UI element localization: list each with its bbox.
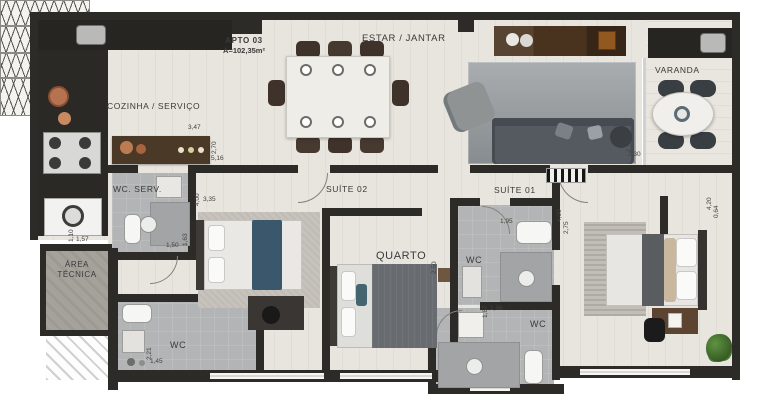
wcserv-toilet	[124, 214, 141, 244]
suite01-pillow	[676, 271, 697, 300]
wcb-vanity	[458, 312, 484, 338]
wca-vanity	[462, 266, 482, 298]
wall-top	[30, 12, 740, 20]
wall-right	[732, 12, 740, 380]
wall-at-bottom	[40, 330, 112, 336]
window-suite01	[580, 369, 690, 375]
window-quarto	[340, 373, 432, 379]
suite01-desk-item-icon	[668, 313, 682, 328]
wall-top-column	[230, 12, 262, 34]
cooktop-burner-icon	[79, 157, 91, 169]
room-label-suite01: SUÍTE 01	[494, 185, 536, 195]
quarto-pillow	[341, 271, 356, 301]
room-label-suite02: SUÍTE 02	[326, 184, 368, 194]
quarto-blanket	[372, 264, 437, 348]
kitchen-pot2-icon	[58, 112, 71, 125]
cooktop-burner-icon	[79, 137, 91, 149]
wall-top-column2	[458, 12, 474, 32]
dining-chair	[268, 80, 285, 106]
suite02-chair	[262, 306, 280, 324]
place-setting-icon	[332, 64, 344, 76]
dim-right-wall-a: 4,20	[706, 190, 713, 210]
dining-chair	[392, 80, 409, 106]
apartment-title: APTO 03 Á=102,35m²	[198, 36, 290, 55]
room-label-quarto: QUARTO	[376, 250, 426, 262]
wall-at-top	[40, 244, 112, 251]
island-light-icon	[198, 147, 204, 153]
wca-toilet	[516, 221, 552, 244]
island-light-icon	[188, 147, 194, 153]
quarto-nightstand	[438, 268, 450, 282]
room-label-wc-suite01: WC	[466, 255, 482, 265]
wall-corridor-5	[588, 165, 740, 173]
place-setting-icon	[332, 116, 344, 128]
room-label-wc-quarto: WC	[530, 319, 546, 329]
dim-laundry-width: 1,57	[76, 236, 89, 243]
island-pot-icon	[120, 141, 133, 154]
dim-wc-left-width: 1,45	[150, 358, 163, 365]
dim-right-wall-b: 0,64	[713, 202, 720, 218]
wall-quarto-top	[322, 208, 422, 216]
kitchen-pot-icon	[50, 88, 67, 105]
dim-varanda-depth: 2,53	[626, 132, 633, 152]
suite01-shoe-rack	[546, 168, 586, 183]
dim-kitchen-width: 3,47	[188, 124, 201, 131]
room-label-wc-social: WC	[170, 340, 186, 350]
quarto-pillow	[341, 307, 356, 337]
suite01-chair	[644, 318, 665, 342]
wall-quarto-left	[322, 208, 330, 378]
wcleft-vanity	[122, 330, 145, 353]
island-light-icon	[178, 147, 184, 153]
wcleft-toilet	[122, 304, 152, 323]
varanda-centerpiece-icon	[674, 106, 690, 122]
dim-quarto-depth: 2,50	[431, 254, 438, 274]
dining-chair	[296, 136, 320, 153]
dim-wc-quarto-depth: 1,67	[482, 302, 489, 318]
wall-corridor-3	[330, 165, 438, 173]
wcb-toilet	[524, 350, 543, 384]
quarto-pillow-teal	[356, 284, 367, 306]
dim-suite02-depth: 4,00	[194, 188, 201, 206]
floor-plan: APTO 03 Á=102,35m² ESTAR / JANTAR COZINH…	[0, 0, 768, 417]
wcleft-sink-icon	[127, 358, 135, 366]
suite02-pillow	[208, 257, 225, 283]
place-setting-icon	[300, 64, 312, 76]
wcleft-sink-icon	[139, 360, 145, 366]
suite01-pillow-tan	[664, 238, 676, 302]
wall-corridor-4	[470, 165, 550, 173]
dim-wcserv-depth: 1,63	[182, 230, 189, 246]
apto-number: APTO 03	[198, 36, 290, 45]
suite02-headboard	[196, 220, 204, 290]
suite02-blanket	[252, 220, 282, 290]
area-tecnica-line1: ÁREA	[46, 260, 108, 269]
wca-drain-icon	[518, 270, 535, 287]
area-tecnica-hatch	[46, 334, 108, 380]
washer-door-icon	[62, 205, 84, 227]
room-label-varanda: VARANDA	[655, 65, 700, 75]
dim-kitchen-length: 5,16	[211, 155, 224, 162]
place-setting-icon	[364, 116, 376, 128]
wall-at-left	[40, 244, 46, 336]
apto-area: Á=102,35m²	[198, 46, 290, 55]
dim-wc-quarto-width: 1,96	[490, 305, 503, 312]
window-suite02	[210, 373, 324, 379]
wall-corridor-2	[188, 165, 298, 173]
suite01-blanket	[642, 234, 664, 306]
suite01-pillow	[676, 238, 697, 267]
dim-wc-suite01-width: 1,95	[500, 218, 513, 225]
cooktop-burner-icon	[49, 157, 61, 169]
dim-laundry-depth: 1,10	[68, 226, 75, 242]
room-label-cozinha: COZINHA / SERVIÇO	[107, 101, 200, 111]
room-label-wc-serv: WC. SERV.	[113, 184, 162, 194]
wall-left	[30, 12, 38, 240]
quarto-headboard	[330, 266, 337, 346]
dim-suite02-width: 3,35	[203, 196, 216, 203]
dim-wcserv-width: 1,50	[166, 242, 179, 249]
kitchen-sink	[76, 25, 106, 45]
varanda-glass-door	[642, 58, 646, 165]
dining-chair	[360, 136, 384, 153]
suite02-pillow	[208, 225, 225, 251]
area-tecnica-line2: TÉCNICA	[46, 270, 108, 279]
dim-suite01-depth: 4,00	[556, 204, 563, 222]
wall-wca-top-a	[450, 198, 480, 206]
dim-varanda-width: 2,30	[628, 151, 641, 158]
wall-suite01-closet	[660, 196, 668, 238]
console-decor-icon	[506, 33, 519, 46]
dim-suite01-closet: 2,75	[563, 218, 570, 234]
room-label-area-tecnica: ÁREA TÉCNICA	[46, 260, 108, 279]
wall-left-bottom-bar	[108, 248, 118, 390]
wcb-drain-icon	[466, 358, 483, 375]
island-pot-icon	[136, 144, 146, 154]
cooktop-burner-icon	[49, 137, 61, 149]
suite01-headboard	[698, 230, 707, 310]
place-setting-icon	[364, 64, 376, 76]
varanda-sink	[700, 33, 726, 53]
dining-chair	[328, 136, 352, 153]
place-setting-icon	[300, 116, 312, 128]
console-decor-box-icon	[598, 31, 616, 50]
wcserv-drain-icon	[140, 216, 157, 233]
dim-kitchen-height: 2,70	[211, 134, 218, 154]
room-label-estar-jantar: ESTAR / JANTAR	[362, 33, 446, 44]
